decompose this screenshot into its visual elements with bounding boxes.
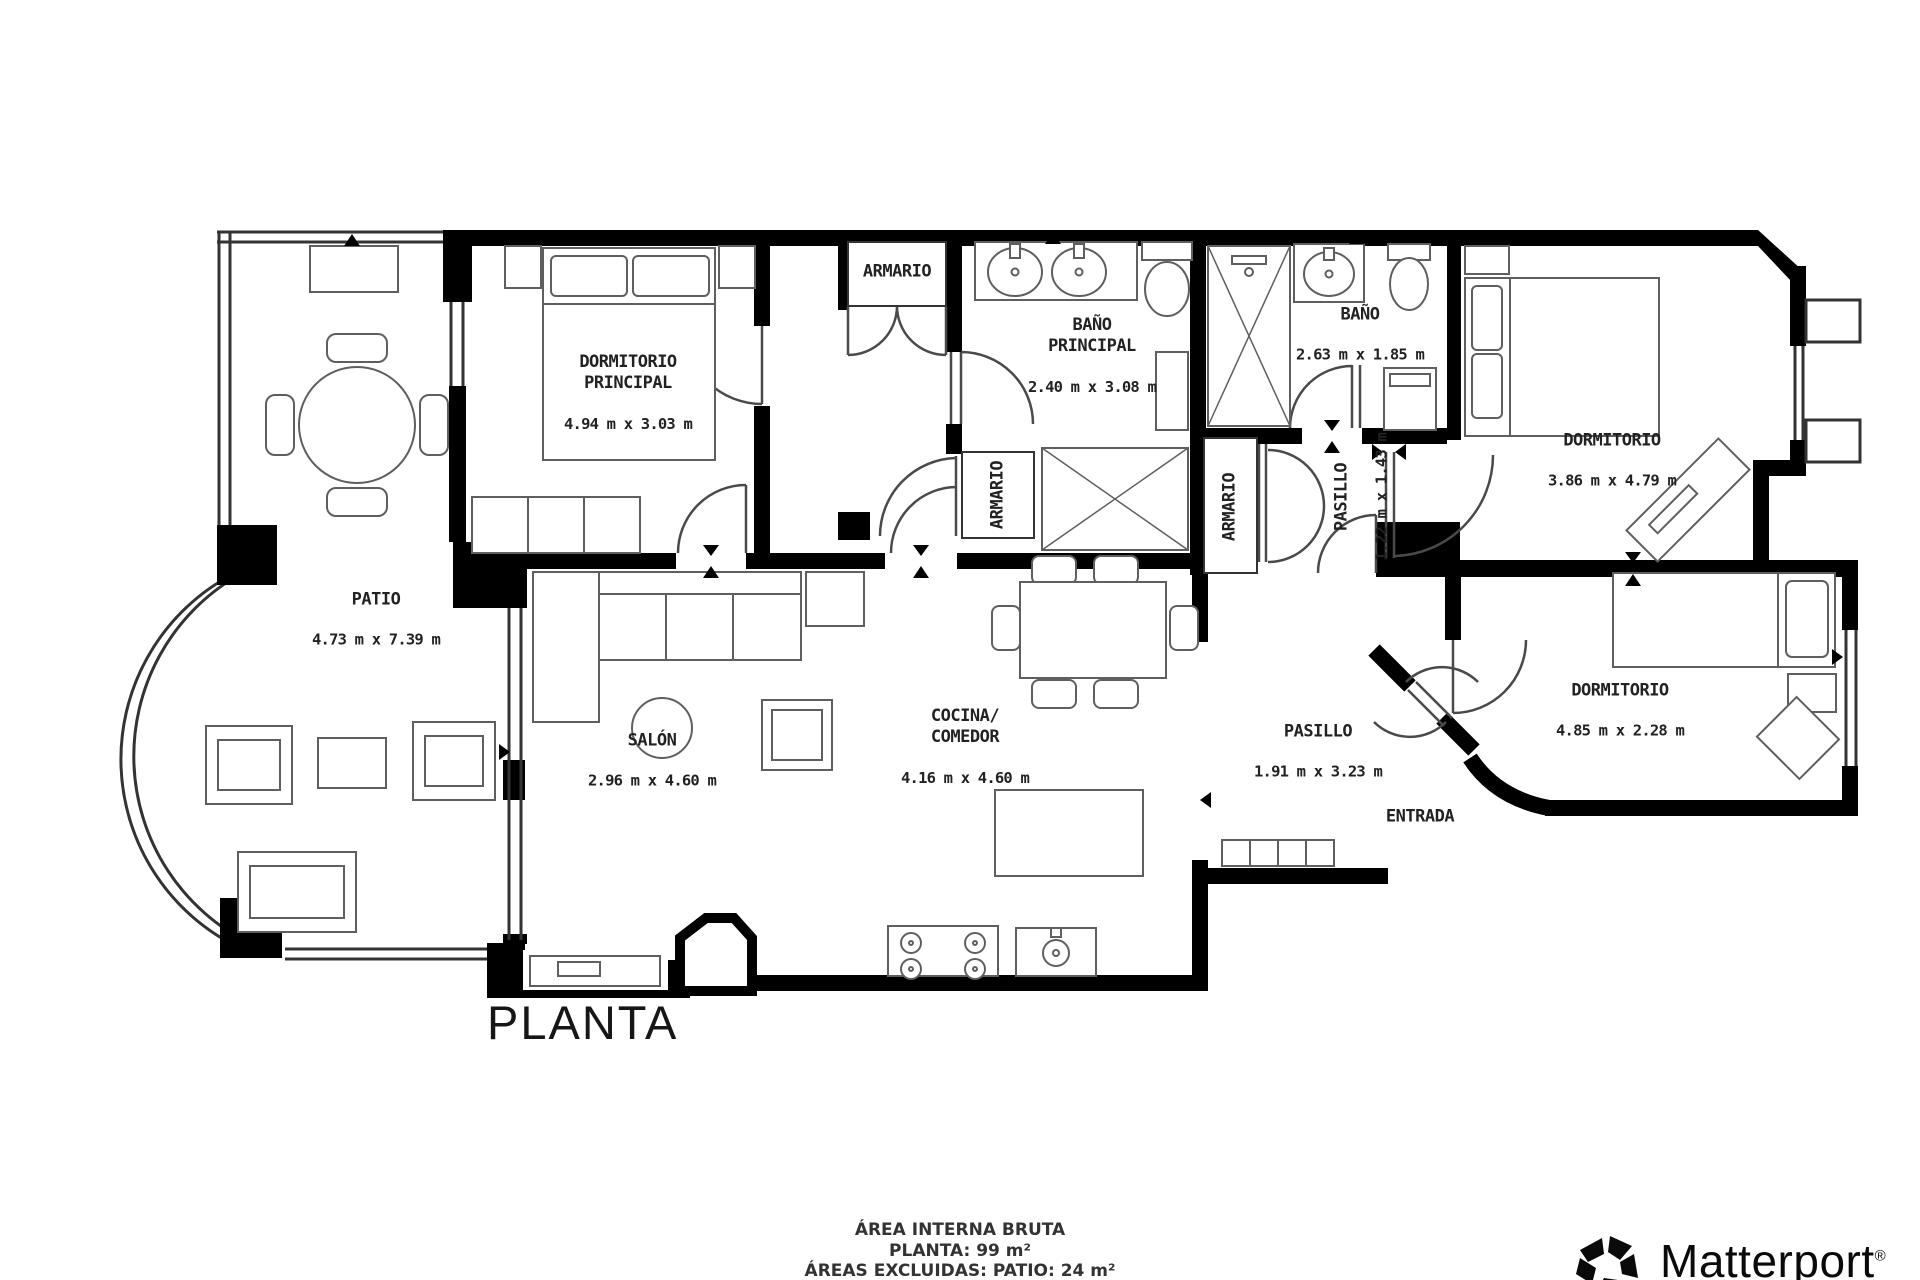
shower-principal bbox=[1042, 352, 1188, 550]
plan-title: PLANTA bbox=[487, 995, 678, 1050]
wardrobe-principal bbox=[472, 497, 640, 553]
patio-post-top bbox=[217, 525, 277, 585]
chimney bbox=[680, 918, 752, 991]
bed-derecha bbox=[1465, 246, 1659, 436]
kitchen-sink bbox=[1016, 928, 1096, 976]
walls-angled bbox=[1374, 650, 1549, 808]
sofa-salon bbox=[533, 572, 864, 770]
cabinet-bano bbox=[1384, 368, 1436, 430]
window-boxes bbox=[1806, 300, 1860, 462]
matterport-logo: Matterport® bbox=[1568, 1228, 1886, 1280]
tv-console bbox=[530, 956, 660, 986]
stove bbox=[888, 926, 998, 979]
shower-bano bbox=[1208, 246, 1290, 426]
matterport-wordmark: Matterport® bbox=[1660, 1234, 1886, 1280]
radiator bbox=[1222, 840, 1334, 866]
sink-bano bbox=[1294, 244, 1364, 302]
desk-derecha bbox=[1626, 438, 1749, 561]
bed-abajo bbox=[1613, 573, 1836, 712]
bed-principal bbox=[505, 246, 755, 460]
closet-vestibulo bbox=[962, 452, 1034, 538]
matterport-pinwheel-icon bbox=[1568, 1228, 1646, 1280]
patio-walls bbox=[121, 232, 487, 959]
toilet-bano bbox=[1388, 244, 1430, 310]
toilet-principal bbox=[1142, 242, 1192, 316]
floorplan-page: DORMITORIO PRINCIPAL 4.94 m x 3.03 m ARM… bbox=[0, 0, 1920, 1280]
kitchen-island bbox=[995, 790, 1143, 876]
dining-set bbox=[992, 556, 1198, 708]
closet-pasillo bbox=[1204, 438, 1257, 573]
closet-top bbox=[848, 242, 946, 306]
floorplan-drawing bbox=[0, 0, 1920, 1280]
double-sink bbox=[975, 242, 1137, 300]
